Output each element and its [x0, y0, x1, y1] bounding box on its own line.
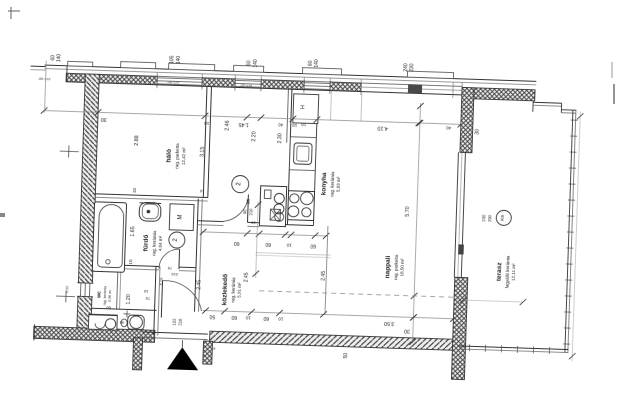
svg-text:terasz: terasz: [496, 261, 504, 281]
svg-text:2.88: 2.88: [134, 135, 140, 146]
svg-text:30: 30: [404, 328, 410, 334]
svg-text:-38 szd: -38 szd: [167, 80, 180, 84]
svg-text:2.30: 2.30: [277, 133, 283, 144]
svg-text:2.45: 2.45: [321, 271, 327, 281]
svg-text:2.20: 2.20: [251, 131, 257, 142]
svg-text:50: 50: [343, 353, 349, 359]
svg-text:3.50: 3.50: [384, 320, 395, 326]
svg-text:10: 10: [132, 188, 137, 194]
svg-text:-00 szd: -00 szd: [240, 84, 253, 88]
svg-text:1.20: 1.20: [126, 294, 132, 305]
svg-text:30: 30: [101, 116, 107, 122]
svg-text:H: H: [300, 105, 306, 109]
svg-text:230: 230: [481, 214, 486, 222]
svg-text:fürdő: fürdő: [142, 235, 150, 252]
svg-text:1.65: 1.65: [130, 226, 136, 237]
svg-text:290: 290: [487, 214, 492, 222]
svg-text:140: 140: [176, 56, 182, 65]
svg-text:rag. kerámia: rag. kerámia: [329, 171, 335, 197]
svg-text:M: M: [178, 215, 184, 220]
svg-text:140: 140: [314, 59, 320, 68]
svg-text:5,83 m²: 5,83 m²: [336, 176, 342, 192]
svg-text:30: 30: [475, 129, 481, 135]
svg-text:közlekedő: közlekedő: [221, 274, 229, 306]
svg-text:60: 60: [310, 242, 316, 248]
svg-text:12,11 m²: 12,11 m²: [511, 263, 517, 281]
svg-text:60: 60: [263, 315, 269, 321]
svg-text:210: 210: [248, 208, 253, 216]
svg-text:2.45: 2.45: [244, 272, 250, 282]
svg-text:rag. kerámia: rag. kerámia: [151, 230, 157, 256]
svg-text:rag. parketta: rag. parketta: [393, 254, 399, 280]
svg-text:0,96 m²: 0,96 m²: [108, 289, 112, 302]
svg-text:5.10: 5.10: [158, 277, 163, 286]
svg-text:háló: háló: [165, 149, 172, 163]
svg-text:18,50 m²: 18,50 m²: [399, 258, 405, 276]
svg-text:rag. kerámia: rag. kerámia: [230, 277, 236, 303]
svg-text:1.45: 1.45: [238, 121, 249, 127]
svg-text:60: 60: [265, 241, 271, 247]
svg-text:230: 230: [409, 63, 415, 72]
svg-text:5.70: 5.70: [405, 206, 411, 217]
svg-text:10: 10: [278, 316, 284, 321]
svg-text:60: 60: [246, 60, 252, 66]
svg-text:-86 szd: -86 szd: [38, 77, 51, 81]
svg-text:85: 85: [246, 198, 251, 204]
svg-text:210: 210: [171, 272, 179, 277]
svg-text:2.45: 2.45: [196, 280, 202, 290]
svg-text:10: 10: [204, 121, 210, 126]
svg-text:10: 10: [245, 315, 251, 320]
svg-text:nappali: nappali: [384, 255, 392, 278]
svg-text:50: 50: [209, 313, 215, 319]
svg-text:40: 40: [278, 122, 284, 127]
svg-text:218: 218: [178, 318, 183, 326]
svg-text:105: 105: [169, 55, 175, 64]
svg-text:4,04 m²: 4,04 m²: [158, 235, 164, 251]
svg-text:konyha: konyha: [320, 172, 328, 195]
svg-text:K6: K6: [500, 214, 506, 220]
svg-text:12,42 m²: 12,42 m²: [181, 147, 187, 165]
svg-text:5,91 m²: 5,91 m²: [236, 282, 242, 298]
svg-text:60: 60: [231, 314, 237, 320]
svg-text:140: 140: [56, 54, 62, 63]
svg-text:10: 10: [292, 123, 298, 128]
svg-text:2.46: 2.46: [225, 120, 231, 131]
svg-text:40: 40: [446, 125, 452, 130]
svg-text:140: 140: [253, 59, 259, 68]
svg-text:10: 10: [128, 259, 133, 265]
svg-text:wc: wc: [96, 291, 102, 299]
svg-text:90: 90: [242, 209, 247, 214]
svg-text:10: 10: [301, 122, 307, 127]
svg-text:rag. kerámia: rag. kerámia: [103, 286, 108, 306]
svg-text:rag. parketta: rag. parketta: [174, 143, 180, 169]
svg-text:3.15: 3.15: [200, 147, 206, 158]
svg-text:4.10: 4.10: [377, 125, 388, 131]
svg-text:60: 60: [234, 240, 240, 246]
svg-text:10: 10: [286, 243, 292, 248]
svg-text:102: 102: [172, 318, 177, 326]
